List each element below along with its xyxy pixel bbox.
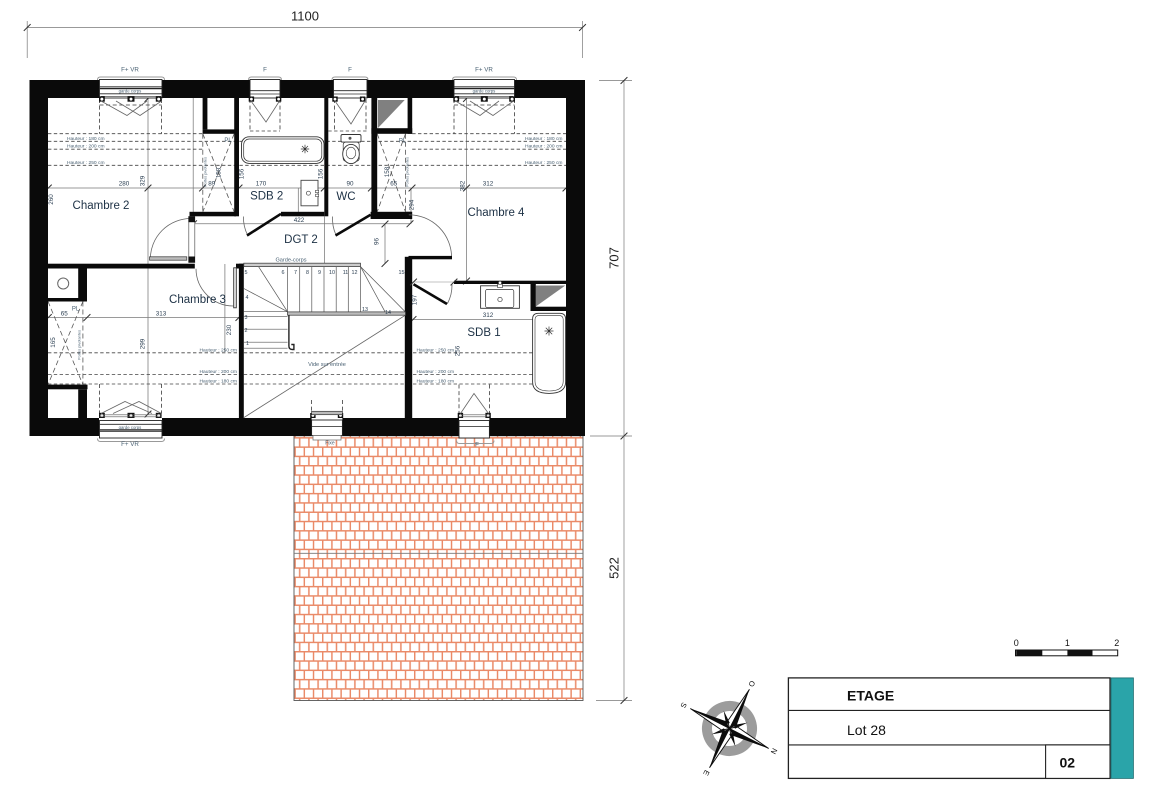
svg-text:Vide sur entrée: Vide sur entrée — [308, 362, 346, 368]
svg-text:SDB 2: SDB 2 — [250, 191, 283, 203]
svg-text:1: 1 — [1065, 638, 1070, 648]
svg-text:8: 8 — [306, 270, 309, 276]
svg-text:4: 4 — [246, 295, 249, 301]
svg-text:1: 1 — [246, 341, 249, 347]
svg-text:312: 312 — [483, 312, 494, 319]
svg-text:F: F — [348, 67, 352, 74]
svg-text:garde corps: garde corps — [473, 88, 496, 93]
svg-text:Fixe: Fixe — [325, 441, 335, 447]
svg-text:DGT 2: DGT 2 — [284, 234, 318, 246]
svg-text:2: 2 — [245, 328, 248, 334]
svg-text:Hauteur : 180 cm: Hauteur : 180 cm — [67, 136, 105, 142]
svg-text:707: 707 — [607, 247, 622, 269]
svg-text:Portes pivotantes: Portes pivotantes — [405, 157, 410, 187]
svg-text:65: 65 — [390, 181, 398, 188]
svg-text:312: 312 — [483, 181, 494, 188]
svg-text:170: 170 — [256, 181, 267, 188]
svg-text:156: 156 — [318, 168, 325, 179]
svg-text:Portes pivotantes: Portes pivotantes — [77, 330, 82, 360]
svg-text:Hauteur : 250 cm: Hauteur : 250 cm — [525, 160, 563, 166]
svg-text:Hauteur : 250 cm: Hauteur : 250 cm — [417, 347, 455, 353]
svg-text:158: 158 — [216, 167, 223, 178]
svg-text:F+ VR: F+ VR — [475, 67, 493, 74]
svg-text:10: 10 — [329, 270, 335, 276]
svg-text:WC: WC — [336, 191, 355, 203]
svg-text:14: 14 — [385, 310, 391, 316]
svg-text:12: 12 — [352, 270, 358, 276]
svg-text:156: 156 — [239, 168, 246, 179]
svg-text:PL: PL — [224, 138, 232, 144]
svg-text:Chambre 2: Chambre 2 — [73, 200, 130, 212]
svg-text:522: 522 — [607, 557, 622, 579]
svg-text:Hauteur : 250 cm: Hauteur : 250 cm — [199, 347, 237, 353]
svg-text:9: 9 — [318, 270, 321, 276]
svg-text:313: 313 — [156, 311, 167, 318]
svg-text:Hauteur : 180 cm: Hauteur : 180 cm — [417, 379, 455, 385]
svg-text:5: 5 — [245, 270, 248, 276]
svg-text:90: 90 — [346, 181, 354, 188]
svg-text:158: 158 — [384, 166, 391, 177]
svg-text:7: 7 — [294, 270, 297, 276]
svg-text:garde corps: garde corps — [119, 88, 142, 93]
svg-text:13: 13 — [362, 307, 368, 313]
svg-text:299: 299 — [140, 338, 147, 349]
svg-text:Hauteur : 250 cm: Hauteur : 250 cm — [67, 160, 105, 166]
svg-text:Hauteur : 180 cm: Hauteur : 180 cm — [199, 379, 237, 385]
svg-text:Chambre 3: Chambre 3 — [169, 294, 226, 306]
svg-text:2: 2 — [1114, 638, 1119, 648]
svg-text:3: 3 — [245, 315, 248, 321]
svg-text:02: 02 — [1060, 755, 1076, 771]
svg-text:15: 15 — [399, 270, 405, 276]
svg-text:96: 96 — [374, 238, 381, 246]
svg-text:PL: PL — [399, 139, 407, 145]
svg-text:197: 197 — [412, 294, 419, 305]
svg-text:Lot 28: Lot 28 — [847, 722, 886, 738]
svg-text:0: 0 — [1014, 638, 1019, 648]
svg-text:SDB 1: SDB 1 — [467, 327, 500, 339]
svg-text:F: F — [475, 442, 479, 449]
svg-text:Hauteur : 200 cm: Hauteur : 200 cm — [525, 144, 563, 150]
svg-text:Portes pivotantes: Portes pivotantes — [203, 157, 208, 187]
svg-text:89: 89 — [208, 181, 216, 188]
svg-text:Chambre 4: Chambre 4 — [468, 207, 525, 219]
svg-text:Hauteur : 180 cm: Hauteur : 180 cm — [525, 136, 563, 142]
svg-text:422: 422 — [294, 217, 305, 224]
svg-text:garde corps: garde corps — [119, 425, 142, 430]
svg-text:280: 280 — [119, 180, 130, 187]
svg-text:329: 329 — [140, 175, 147, 186]
svg-text:F+ VR: F+ VR — [121, 441, 139, 448]
svg-text:65: 65 — [61, 311, 69, 318]
svg-text:256: 256 — [455, 345, 462, 356]
svg-text:382: 382 — [460, 180, 467, 191]
svg-text:260: 260 — [48, 194, 55, 205]
svg-text:F: F — [263, 67, 267, 74]
svg-text:294: 294 — [409, 199, 416, 210]
svg-text:11: 11 — [343, 270, 349, 276]
svg-text:ETAGE: ETAGE — [847, 688, 894, 704]
svg-text:6: 6 — [282, 270, 285, 276]
svg-text:230: 230 — [226, 324, 233, 335]
svg-text:1100: 1100 — [291, 9, 319, 24]
svg-text:Hauteur : 200 cm: Hauteur : 200 cm — [67, 144, 105, 150]
svg-text:PL: PL — [72, 307, 80, 313]
svg-text:165: 165 — [50, 337, 57, 348]
svg-text:F+ VR: F+ VR — [121, 67, 139, 74]
svg-text:Garde-corps: Garde-corps — [275, 258, 306, 264]
svg-text:Hauteur : 200 cm: Hauteur : 200 cm — [199, 369, 237, 375]
svg-text:Hauteur : 200 cm: Hauteur : 200 cm — [417, 369, 455, 375]
